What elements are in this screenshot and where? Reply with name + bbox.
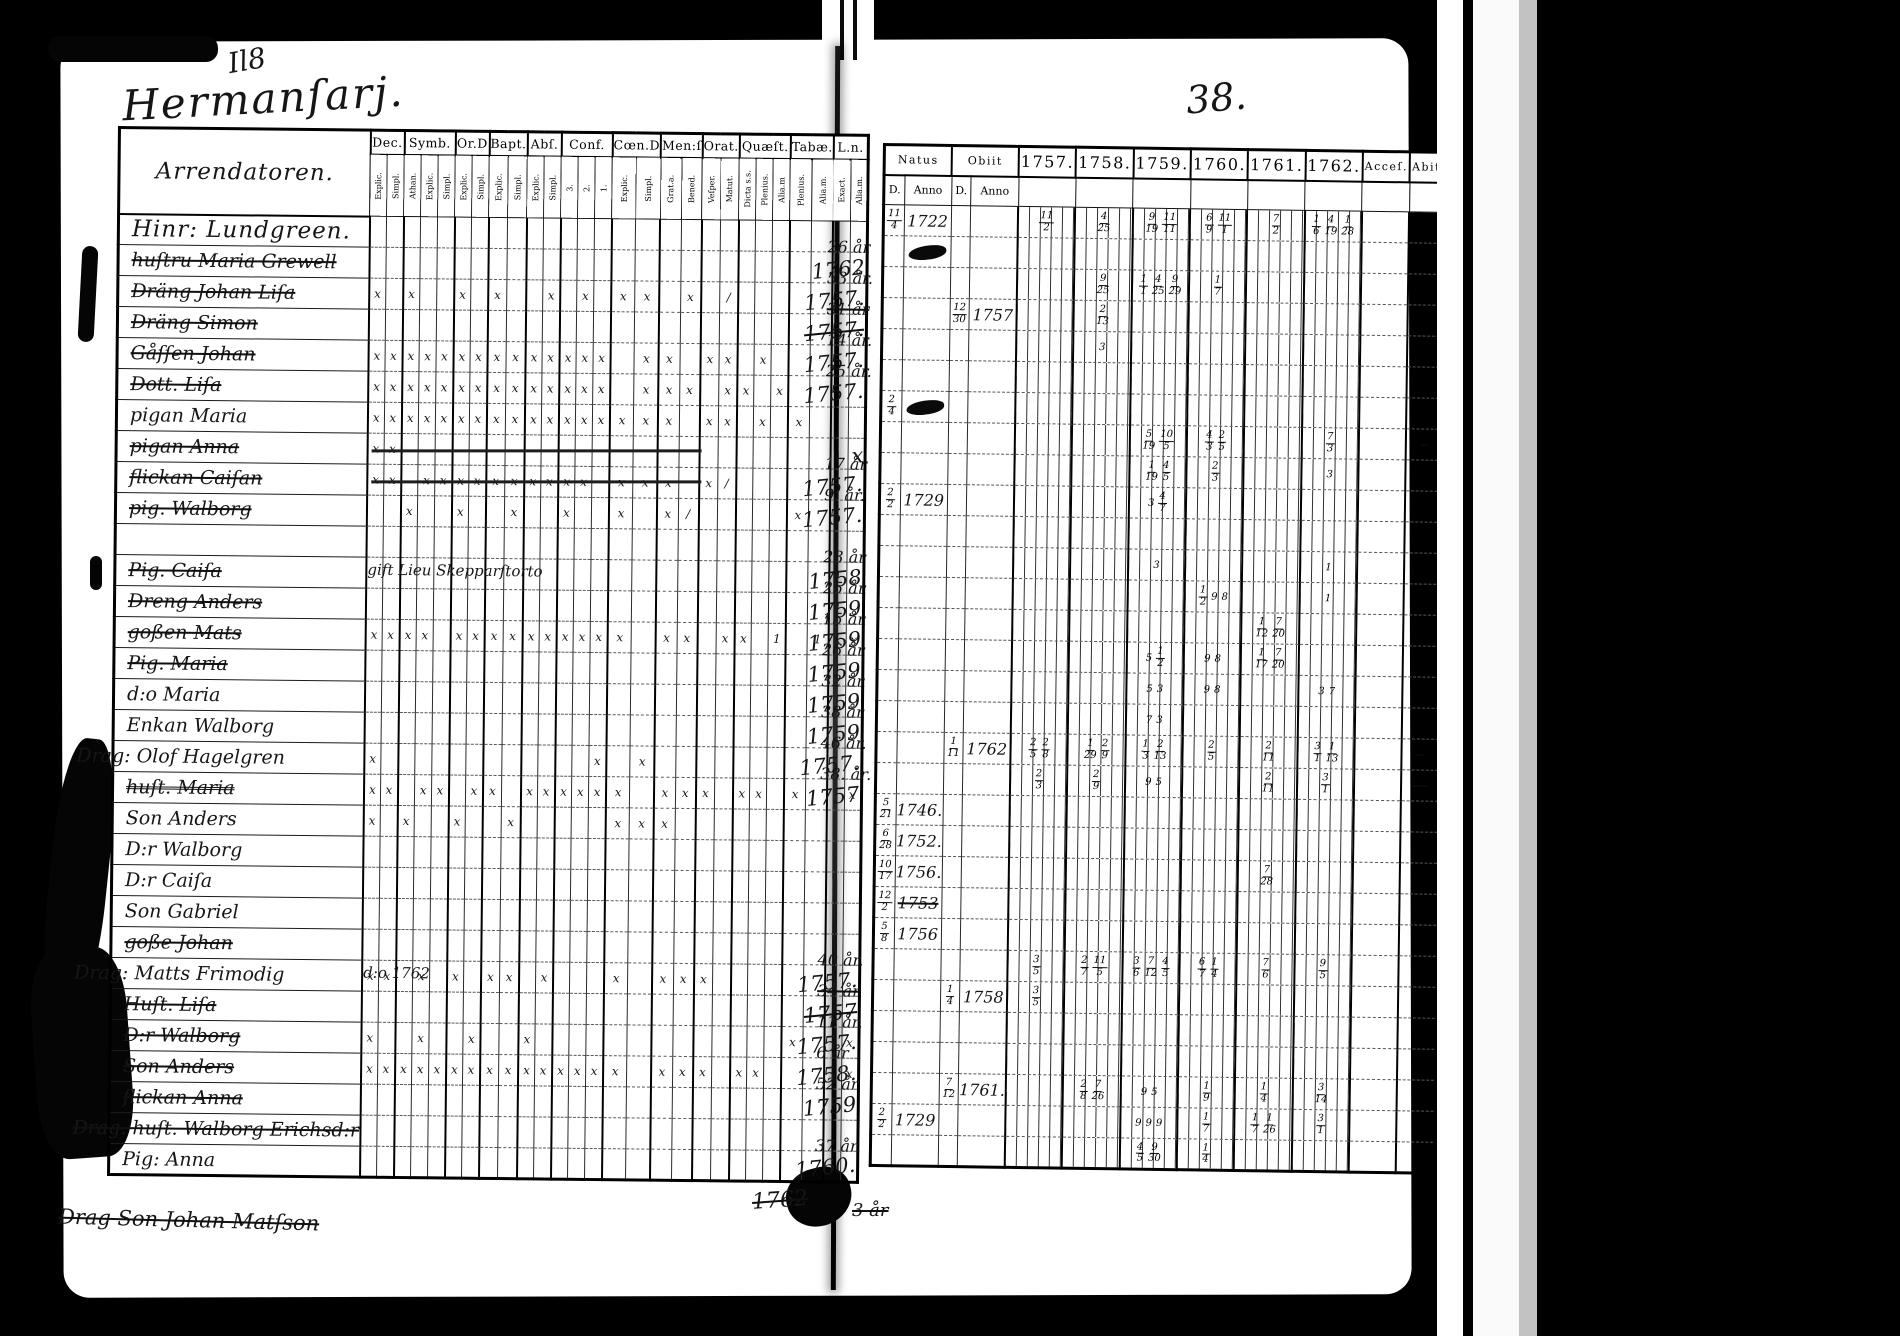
mark-cell xyxy=(734,716,751,747)
x-mark: x xyxy=(680,972,687,986)
mark-cell xyxy=(569,993,586,1024)
accessit-cell xyxy=(1357,521,1405,553)
mark-cell xyxy=(553,900,570,931)
communion-dates: 25 xyxy=(1205,746,1218,757)
mark-cell xyxy=(446,1023,463,1054)
natus-year xyxy=(896,763,943,795)
age-annotation: 23 år xyxy=(823,547,875,567)
age-annotation: 31 år xyxy=(827,299,879,319)
obiit-day: 111 xyxy=(943,732,963,763)
communion-date-cell: 112720 xyxy=(1241,613,1299,645)
mark-cell xyxy=(719,313,738,344)
natus-day: 114 xyxy=(883,205,904,236)
mark-cell xyxy=(572,745,589,776)
obiit-day xyxy=(949,329,969,360)
obiit-day xyxy=(945,608,965,639)
mark-cell xyxy=(826,841,843,872)
mark-cell: x xyxy=(435,403,452,434)
natus-year: 1729 xyxy=(900,484,947,516)
communion-date-cell: 117720 xyxy=(1241,644,1299,676)
hw-marks: 1017 xyxy=(876,865,895,876)
name-cell: pigan Anna xyxy=(116,430,367,464)
mark-cell xyxy=(769,561,786,592)
page-edge-shadow xyxy=(48,36,218,62)
x-mark: x xyxy=(582,289,589,303)
natus-day xyxy=(875,762,896,793)
mark-cell: x xyxy=(673,963,694,994)
communion-dates: 4325 xyxy=(1203,436,1228,447)
natus-day xyxy=(872,1010,893,1041)
x-mark: x xyxy=(591,1064,598,1078)
x-mark: x xyxy=(424,349,431,363)
person-name: pigan Anna xyxy=(130,435,240,458)
x-mark: x xyxy=(387,628,394,642)
x-mark: x xyxy=(475,350,482,364)
mark-cell xyxy=(481,930,500,961)
communion-date-cell xyxy=(1303,303,1361,335)
date-fraction: 69 xyxy=(1205,214,1214,236)
mark-cell xyxy=(576,311,593,342)
day-subheader: D. xyxy=(884,175,905,205)
hw-marks: 58 xyxy=(878,928,891,939)
communion-date-cell xyxy=(1181,860,1239,892)
date-fraction: 76 xyxy=(1261,958,1270,980)
accessit-cell xyxy=(1362,211,1410,243)
mark-cell xyxy=(385,309,402,340)
mark-cell xyxy=(411,1085,428,1116)
mark-cell xyxy=(559,311,576,342)
x-mark: x xyxy=(699,1065,706,1079)
mark-cell xyxy=(450,651,467,682)
communion-dates: 72 xyxy=(1270,220,1283,231)
mark-cell: x xyxy=(556,621,573,652)
mark-cell xyxy=(720,251,739,282)
obiit-day xyxy=(942,825,962,856)
mark-cell xyxy=(764,1088,781,1119)
communion-dates: 112720 xyxy=(1253,623,1287,634)
mark-cell xyxy=(769,530,786,561)
date-fraction: 14 xyxy=(946,985,955,1007)
mark-cell: x xyxy=(429,1054,446,1085)
date-fraction: 43 xyxy=(1205,431,1214,453)
mark-cell xyxy=(676,653,697,684)
mark-cell xyxy=(449,744,466,775)
mark-cell xyxy=(651,1025,672,1056)
date-fraction: 19 xyxy=(1202,1082,1211,1104)
mark-cell: x xyxy=(611,281,636,312)
communion-date-cell: 31 xyxy=(1297,768,1355,800)
date-fraction: 1230 xyxy=(952,303,967,325)
mark-cell xyxy=(430,899,447,930)
x-mark: x xyxy=(434,1062,441,1076)
hw-year: 1729 xyxy=(903,490,944,510)
mark-cell xyxy=(553,931,570,962)
x-mark: x xyxy=(440,411,447,425)
communion-date-cell xyxy=(1302,396,1360,428)
mark-cell xyxy=(826,903,843,934)
mark-cell xyxy=(382,588,399,619)
age-annotation: 46 år. xyxy=(820,733,872,753)
mark-cell xyxy=(748,995,765,1026)
mark-cell xyxy=(716,592,735,623)
accessit-cell xyxy=(1361,273,1409,305)
mark-cell xyxy=(517,1148,534,1179)
mark-cell: x xyxy=(463,1023,480,1054)
mark-cell xyxy=(586,1024,603,1055)
mark-cell xyxy=(693,995,712,1026)
natus-day xyxy=(872,979,893,1010)
date-fraction: 47 xyxy=(1158,492,1167,514)
communion-date-cell: 35 xyxy=(1007,950,1065,982)
x-mark: x xyxy=(546,413,553,427)
obiit-day xyxy=(944,670,964,701)
mark-cell xyxy=(655,684,676,715)
x-mark: / xyxy=(725,476,729,490)
hw-marks: 628 xyxy=(877,834,894,845)
hw-number: 5 xyxy=(1146,683,1153,694)
mark-cell xyxy=(651,1118,672,1149)
mark-cell xyxy=(362,929,379,960)
communion-dates: 23 xyxy=(1209,467,1222,478)
mark-cell xyxy=(466,682,483,713)
accessit-cell xyxy=(1359,428,1407,460)
hw-number: 9 xyxy=(1211,591,1218,602)
accessit-cell xyxy=(1353,831,1401,863)
communion-dates: 117720 xyxy=(1253,654,1287,665)
mark-cell xyxy=(588,838,605,869)
column-subheader: Simpl. xyxy=(508,156,528,218)
mark-cell: x xyxy=(385,371,402,402)
abiit-cell xyxy=(1402,708,1441,740)
communion-dates: 14 xyxy=(1199,1149,1212,1160)
hw-year: 1756. xyxy=(895,862,941,882)
mark-cell xyxy=(653,870,674,901)
mark-cell xyxy=(611,250,636,281)
mark-cell xyxy=(420,248,437,279)
mark-cell xyxy=(611,219,636,250)
communion-date-cell xyxy=(1075,238,1133,270)
accessit-cell xyxy=(1354,769,1402,801)
communion-dates: 31113 xyxy=(1311,748,1340,759)
obiit-year xyxy=(968,361,1016,393)
x-mark: x xyxy=(436,783,443,797)
mark-cell xyxy=(377,1146,394,1177)
mark-cell xyxy=(610,343,635,374)
mark-cell: x xyxy=(610,405,635,436)
mark-cell xyxy=(480,992,499,1023)
mark-cell xyxy=(592,497,609,528)
age-annotation: 40 år. xyxy=(817,950,869,970)
mark-cell xyxy=(519,900,536,931)
mark-cell xyxy=(804,903,826,934)
hw-number: 8 xyxy=(1214,653,1221,664)
natus-year xyxy=(899,546,946,578)
mark-cell: x xyxy=(539,621,556,652)
obiit-year xyxy=(966,547,1014,579)
mark-cell xyxy=(523,590,540,621)
natus-day xyxy=(879,514,900,545)
mark-cell: x xyxy=(700,344,719,375)
communion-date-cell: 16419128 xyxy=(1304,210,1362,242)
date-fraction: 114 xyxy=(887,209,902,231)
communion-date-cell: 23 xyxy=(1010,764,1068,796)
mark-cell xyxy=(568,1148,585,1179)
mark-cell xyxy=(711,1057,730,1088)
communion-date-cell: 45930 xyxy=(1119,1138,1177,1170)
mark-cell: x xyxy=(482,775,501,806)
name-cell: huſt. Maria xyxy=(112,771,363,805)
communion-date-cell: 1 xyxy=(1300,551,1358,583)
hw-marks: 111 xyxy=(945,742,962,753)
mark-cell xyxy=(503,590,522,621)
hw-marks: 113 xyxy=(1412,749,1429,760)
year-subcolumns xyxy=(1190,179,1248,210)
mark-cell xyxy=(380,836,397,867)
x-mark: x xyxy=(369,814,376,828)
anno-subheader: Anno xyxy=(904,175,951,206)
abiit-cell xyxy=(1396,1111,1435,1143)
date-fraction: 13 xyxy=(1141,740,1150,762)
mark-cell xyxy=(399,650,416,681)
obiit-year xyxy=(957,1136,1005,1168)
mark-cell: x xyxy=(734,623,751,654)
communion-date-cell: 53 xyxy=(1126,673,1184,705)
mark-cell xyxy=(783,872,805,903)
mark-cell xyxy=(395,991,412,1022)
communion-date-cell xyxy=(1066,889,1124,921)
obiit-year: 1762 xyxy=(963,733,1011,765)
mark-cell xyxy=(560,249,577,280)
natus-year xyxy=(900,515,947,547)
mark-cell xyxy=(635,250,660,281)
mark-cell xyxy=(380,867,397,898)
name-cell: Dott. Liſa xyxy=(117,369,368,403)
mark-cell xyxy=(554,869,571,900)
obiit-day xyxy=(943,763,963,794)
hw-number: 9 xyxy=(1204,684,1211,695)
natus-header: Natus xyxy=(884,145,952,176)
communion-date-cell xyxy=(1294,985,1352,1017)
obiit-year xyxy=(970,206,1018,238)
mark-cell xyxy=(484,589,503,620)
mark-cell: x xyxy=(518,1024,535,1055)
obiit-year xyxy=(969,330,1017,362)
communion-dates: 69111 xyxy=(1203,219,1234,230)
page-number: 38. xyxy=(1184,73,1248,122)
person-name: flickan Caiſan xyxy=(129,466,262,489)
mark-cell xyxy=(730,1088,747,1119)
x-mark: x xyxy=(541,970,548,984)
mark-cell xyxy=(377,1084,394,1115)
mark-cell: x xyxy=(552,1055,569,1086)
mark-cell xyxy=(593,311,610,342)
mark-cell xyxy=(716,654,735,685)
mark-cell xyxy=(773,220,790,251)
mark-cell xyxy=(783,903,805,934)
mark-cell xyxy=(729,1119,746,1150)
x-mark: x xyxy=(639,754,646,768)
x-mark: x xyxy=(424,380,431,394)
accessit-cell xyxy=(1349,1141,1397,1173)
mark-cell: x xyxy=(658,405,679,436)
mark-cell: x xyxy=(463,1054,480,1085)
x-mark: x xyxy=(369,752,376,766)
mark-cell xyxy=(752,561,769,592)
mark-cell: x xyxy=(416,620,433,651)
x-mark: x xyxy=(577,785,584,799)
mark-cell xyxy=(702,220,721,251)
mark-cell xyxy=(738,282,755,313)
communion-dates: 76 xyxy=(1259,964,1272,975)
mark-cell xyxy=(518,993,535,1024)
mark-cell xyxy=(631,684,656,715)
x-mark: x xyxy=(574,1064,581,1078)
communion-date-cell xyxy=(1131,301,1189,333)
mark-cell xyxy=(487,310,506,341)
mark-cell: x xyxy=(469,403,486,434)
hw-year: 1758 xyxy=(963,987,1004,1007)
x-mark: x xyxy=(705,476,712,490)
mark-cell xyxy=(843,841,860,872)
natus-year xyxy=(891,1135,938,1167)
date-fraction: 14 xyxy=(1201,1143,1210,1165)
mark-cell xyxy=(629,901,654,932)
mark-cell xyxy=(701,282,720,313)
mark-cell xyxy=(631,622,656,653)
obiit-day xyxy=(938,1104,958,1135)
column-subheader: Simpl. xyxy=(544,156,562,218)
natus-day xyxy=(876,731,897,762)
mark-cell: x xyxy=(414,775,431,806)
x-mark: x xyxy=(475,381,482,395)
mark-cell xyxy=(712,964,731,995)
communion-date-cell xyxy=(1186,488,1244,520)
accessit-cell xyxy=(1355,707,1403,739)
communion-date-cell xyxy=(1247,241,1305,273)
mark-cell: x xyxy=(368,371,385,402)
mark-cell xyxy=(539,683,556,714)
communion-dates: 27115 xyxy=(1078,961,1109,972)
mark-cell xyxy=(364,712,381,743)
obiit-day xyxy=(951,205,971,236)
mark-cell xyxy=(453,310,470,341)
date-fraction: 25 xyxy=(1217,431,1226,453)
x-mark: x xyxy=(597,413,604,427)
communion-date-cell: 3 xyxy=(1073,331,1131,363)
mark-cell xyxy=(627,1025,652,1056)
mark-cell xyxy=(543,249,560,280)
x-mark: x xyxy=(564,413,571,427)
obiit-day xyxy=(941,918,961,949)
date-fraction: 213 xyxy=(1096,305,1109,327)
name-cell: Son Gabriel xyxy=(111,895,362,929)
communion-date-cell xyxy=(1066,827,1124,859)
mark-cell: x xyxy=(412,1023,429,1054)
mark-cell xyxy=(804,872,826,903)
communion-date-cell xyxy=(1298,644,1356,676)
column-header: L.n. xyxy=(834,135,868,159)
x-mark: x xyxy=(581,351,588,365)
person-name: Dott. Liſa xyxy=(130,373,221,396)
communion-date-cell xyxy=(1189,240,1247,272)
natus-day xyxy=(880,452,901,483)
date-fraction: 105 xyxy=(1159,430,1174,452)
last-communion-year: 1760. xyxy=(795,1153,857,1183)
year-subcolumns xyxy=(1305,180,1363,211)
communion-dates: 2528 xyxy=(1027,744,1052,755)
mark-cell: / xyxy=(678,498,699,529)
obiit-year xyxy=(961,888,1009,920)
mark-cell xyxy=(484,651,503,682)
communion-dates: 347 xyxy=(1146,497,1169,508)
x-mark: x xyxy=(743,384,750,398)
mark-cell xyxy=(764,1057,781,1088)
mark-cell xyxy=(432,682,449,713)
obiit-day xyxy=(943,794,963,825)
mark-cell xyxy=(399,588,416,619)
x-mark: 1 xyxy=(773,632,781,646)
abiit-cell xyxy=(1399,956,1438,988)
date-fraction: 519 xyxy=(1142,430,1155,452)
mark-cell: x xyxy=(750,778,767,809)
mark-cell xyxy=(571,807,588,838)
mark-cell xyxy=(463,992,480,1023)
mark-cell: x xyxy=(436,372,453,403)
x-mark: x xyxy=(512,350,519,364)
mark-cell xyxy=(710,1150,729,1181)
hw-marks: 521 xyxy=(878,803,895,814)
mark-cell: x xyxy=(382,619,399,650)
communion-date-cell xyxy=(1017,237,1075,269)
abiit-cell xyxy=(1400,832,1439,864)
natus-year xyxy=(903,298,950,330)
mark-cell xyxy=(465,837,482,868)
mark-cell xyxy=(786,562,808,593)
name-cell: Drag: Matts Frimodigd:o 1762 xyxy=(110,957,361,991)
mark-cell xyxy=(577,218,594,249)
x-mark: x xyxy=(776,384,783,398)
natus-day xyxy=(873,948,894,979)
column-header: Dec. xyxy=(370,130,404,154)
mark-cell xyxy=(843,872,860,903)
mark-cell xyxy=(749,902,766,933)
strike-scribble xyxy=(371,480,701,483)
name-cell: D:r Walborg xyxy=(110,1019,361,1053)
x-mark: x xyxy=(374,287,381,301)
mark-cell xyxy=(415,713,432,744)
x-mark: x xyxy=(417,1031,424,1045)
mark-cell xyxy=(381,743,398,774)
x-mark: x xyxy=(578,630,585,644)
communion-date-cell xyxy=(1296,799,1354,831)
mark-cell xyxy=(749,840,766,871)
mark-cell xyxy=(574,528,591,559)
communion-date-cell: 23 xyxy=(1186,457,1244,489)
mark-cell xyxy=(695,809,714,840)
mark-cell: x xyxy=(675,777,696,808)
communion-dates: 17126 xyxy=(1249,1119,1278,1130)
communion-dates: 53 xyxy=(1144,683,1165,694)
communion-date-cell xyxy=(1122,983,1180,1015)
communion-date-cell: 35 xyxy=(1007,981,1065,1013)
date-fraction: 58 xyxy=(880,922,889,944)
mark-cell xyxy=(420,217,437,248)
mark-cell xyxy=(498,1148,517,1179)
mark-cell xyxy=(415,744,432,775)
obiit-year xyxy=(970,268,1018,300)
mark-cell xyxy=(805,841,827,872)
mark-cell xyxy=(789,252,811,283)
